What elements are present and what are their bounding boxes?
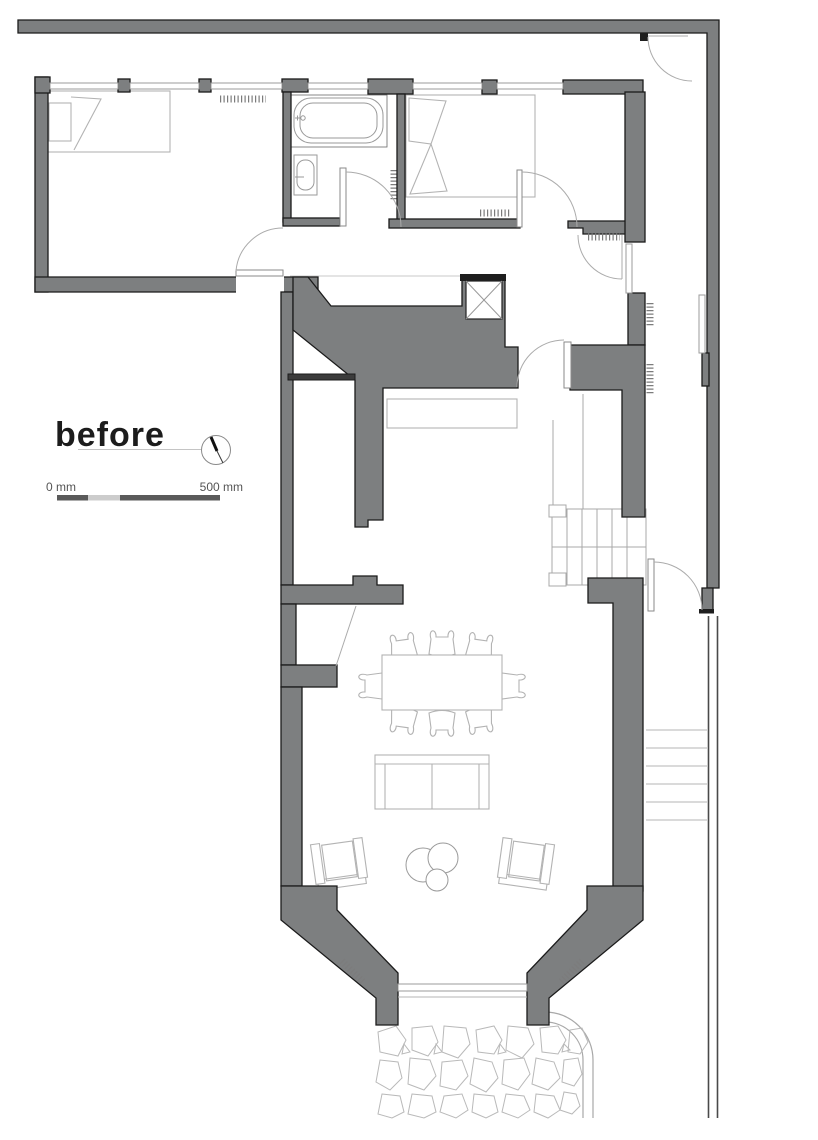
- hall-right-wall-upper: [628, 293, 645, 345]
- wall-cap: [699, 609, 714, 614]
- window-pier: [482, 80, 497, 94]
- right-wall-stub: [702, 588, 713, 610]
- living-room-right-wall: [588, 578, 643, 891]
- armchair-icon: [310, 838, 368, 891]
- scale-bar: 0 mm 500 mm: [46, 480, 243, 501]
- bay-window-right-wall: [527, 886, 643, 1025]
- window-icon: [50, 83, 118, 89]
- floor-plan-drawing: before 0 mm 500 mm: [0, 0, 818, 1140]
- dining-table-icon: [382, 655, 502, 710]
- front-entrance-door: [648, 36, 692, 81]
- window-icon: [130, 83, 199, 89]
- sofa-icon: [375, 755, 489, 809]
- bedroom1-left-wall: [35, 77, 48, 292]
- dining-set: [359, 631, 525, 736]
- bathtub-icon: [290, 95, 387, 147]
- north-arrow-icon: [202, 436, 231, 465]
- bedroom1-door: [236, 228, 283, 276]
- bathroom-left-wall: [283, 92, 291, 222]
- window-icon: [497, 83, 563, 89]
- window-pier: [35, 77, 50, 93]
- garden-steps: [646, 730, 707, 820]
- door-opening: [236, 276, 284, 293]
- window-icon: [211, 83, 282, 89]
- right-wall-pier: [702, 353, 709, 386]
- window-icon: [308, 83, 368, 89]
- door-hinge-block: [640, 33, 648, 41]
- bathroom-bottom-wall: [283, 218, 340, 226]
- plan-title: before: [55, 416, 165, 454]
- bedroom2-left-wall: [397, 94, 405, 220]
- washbasin-icon: [294, 155, 317, 195]
- bathroom-door: [340, 168, 401, 227]
- hall-right-wall-lower: [570, 345, 645, 517]
- corridor-left-wall: [281, 292, 293, 585]
- window-icon: [413, 83, 482, 89]
- living-room-left-pier: [281, 665, 337, 687]
- single-bed-icon: [45, 91, 170, 152]
- garden-path-edge: [545, 1012, 593, 1118]
- coffee-table-icon: [406, 843, 458, 891]
- back-garden-door: [648, 559, 702, 611]
- window-pier: [368, 79, 413, 94]
- scale-start-label: 0 mm: [46, 480, 76, 494]
- duct-shaft-icon: [460, 274, 506, 319]
- living-room-left-wall: [281, 687, 302, 886]
- thin-partition-wall: [288, 374, 355, 380]
- hall-to-living-door: [517, 340, 571, 388]
- window-pier: [282, 79, 308, 92]
- sideboard-icon: [387, 399, 517, 428]
- scale-bar-segment: [120, 495, 220, 501]
- scale-bar-segment: [57, 495, 88, 501]
- bedroom2-bottom-wall: [389, 219, 520, 228]
- armchair-icon: [497, 838, 555, 891]
- window-pier: [199, 79, 211, 92]
- bay-front-window-icon: [398, 984, 527, 991]
- living-room-top-wall: [281, 576, 403, 604]
- floor-plan-canvas: before 0 mm 500 mm: [0, 0, 818, 1140]
- scale-end-label: 500 mm: [200, 480, 243, 494]
- bay-window-left-wall: [281, 886, 398, 1025]
- bedroom-wing-door: [578, 235, 622, 279]
- window-pier: [118, 79, 130, 92]
- window-icon: [626, 244, 632, 293]
- living-room-left-wall: [281, 604, 296, 665]
- crazy-paving: [376, 1026, 588, 1118]
- title-block: before: [55, 416, 231, 465]
- bedroom2-right-wall: [625, 92, 645, 242]
- living-room-door-leaf: [336, 606, 356, 666]
- double-bed-icon: [406, 95, 535, 197]
- window-icon: [699, 295, 705, 353]
